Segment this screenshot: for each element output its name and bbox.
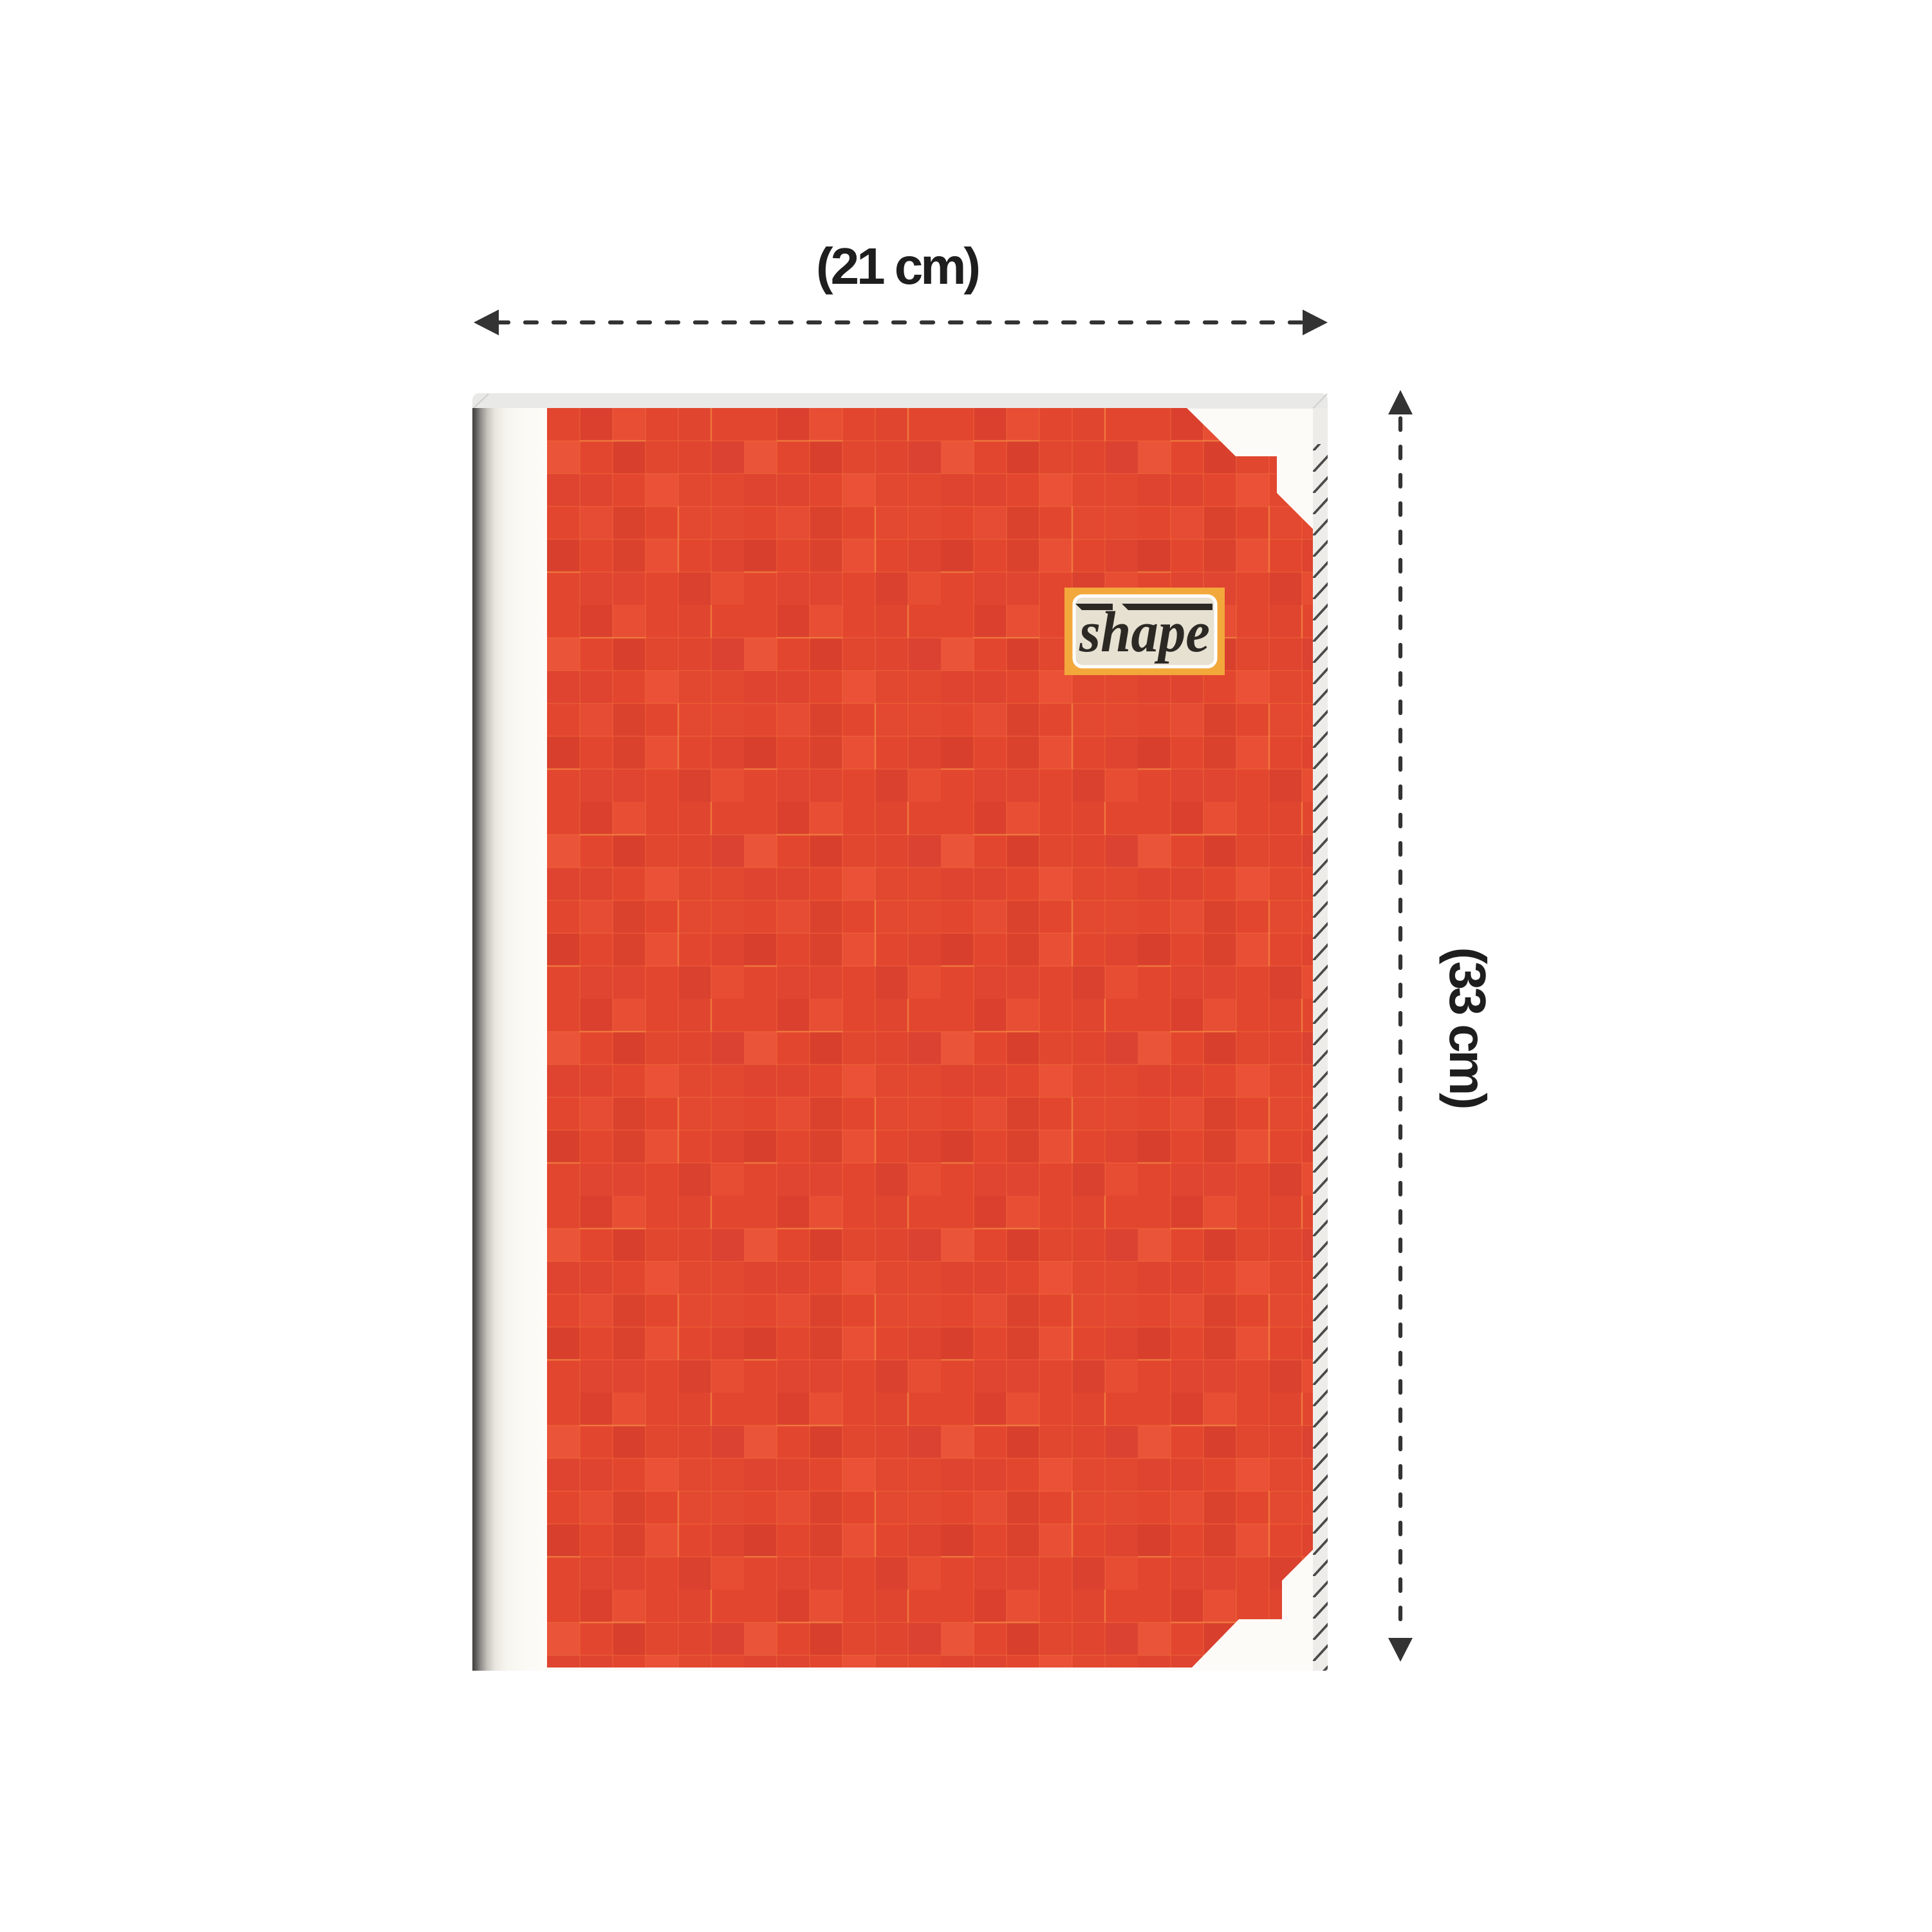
svg-text:(21 cm): (21 cm) [816, 237, 981, 295]
svg-text:(33 cm): (33 cm) [1439, 947, 1496, 1110]
